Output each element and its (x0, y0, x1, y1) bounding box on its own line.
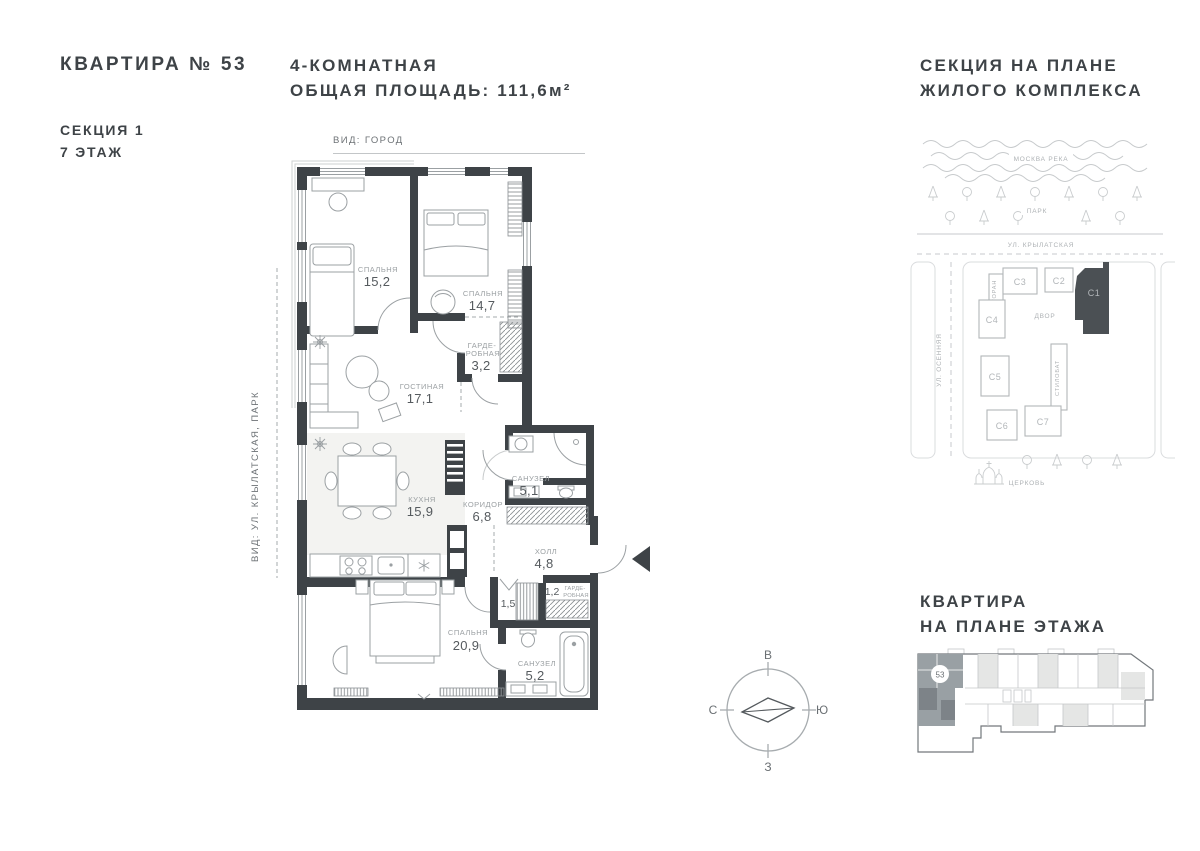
apartment-type: 4-КОМНАТНАЯ (290, 54, 572, 79)
room-label-bedroom3: СПАЛЬНЯ (448, 628, 488, 637)
building-c5-label: С5 (989, 372, 1002, 382)
building-c6-label: С6 (996, 421, 1009, 431)
room-area-hall: 4,8 (535, 556, 554, 571)
building-c3-label: С3 (1014, 277, 1027, 287)
room-label-kitchen: КУХНЯ (408, 495, 436, 504)
building-c1-highlighted (1075, 262, 1109, 334)
view-top-label: ВИД: ГОРОД (333, 135, 404, 146)
room-area-corridor: 6,8 (473, 509, 492, 524)
room-area-bath1: 5,1 (520, 483, 539, 498)
bedroom3-furniture (333, 580, 454, 699)
room-area-closet: 1,5 (501, 598, 516, 610)
floor-plate-balconies (948, 649, 1114, 654)
church-label: ЦЕРКОВЬ (1009, 480, 1045, 487)
compass-icon: В С Ю З (708, 650, 828, 774)
entrance-arrow-icon (632, 546, 650, 572)
church-icon (974, 461, 1004, 484)
room-label-bedroom2: СПАЛЬНЯ (463, 289, 503, 298)
room-area-kitchen: 15,9 (407, 504, 434, 519)
room-area-bath2: 5,2 (526, 668, 545, 683)
page-title: КВАРТИРА № 53 (60, 54, 247, 76)
bottom-trees-icon (1023, 454, 1123, 469)
section-label: СЕКЦИЯ 1 (60, 120, 144, 142)
room-label-bath1: САНУЗЕЛ (512, 474, 550, 483)
street-top-label: УЛ. КРЫЛАТСКАЯ (1008, 242, 1074, 249)
unit-number-badge: 53 (936, 671, 945, 680)
apartment-floor-plan: СПАЛЬНЯ 15,2 СПАЛЬНЯ 14,7 ГАРДЕ- РОБНАЯ … (250, 150, 680, 730)
room-label-bath2: САНУЗЕЛ (518, 659, 556, 668)
floor-label: 7 ЭТАЖ (60, 142, 144, 164)
room-label-hall: ХОЛЛ (535, 547, 557, 556)
river-label: МОСКВА РЕКА (1014, 156, 1069, 163)
building-c1-label: С1 (1088, 288, 1101, 298)
courtyard-label: ДВОР (1034, 313, 1055, 320)
site-plan-title-line1: СЕКЦИЯ НА ПЛАНЕ (920, 54, 1143, 79)
compass-east-label: В (764, 650, 772, 662)
room-area-living: 17,1 (407, 391, 434, 406)
street-left-label: УЛ. ОСЕННЯЯ (936, 333, 943, 386)
compass-north-label: С (709, 703, 718, 717)
living-furniture (310, 344, 401, 428)
floor-plan-sheet: КВАРТИРА № 53 СЕКЦИЯ 1 7 ЭТАЖ 4-КОМНАТНА… (0, 0, 1200, 851)
room-area-wardrobe1: 3,2 (472, 358, 491, 373)
building-c7-label: С7 (1037, 417, 1050, 427)
room-label-wardrobe2-l1: ГАРДЕ- (564, 586, 585, 592)
compass-south-label: Ю (816, 703, 828, 717)
total-area: ОБЩАЯ ПЛОЩАДЬ: 111,6м² (290, 79, 572, 104)
building-cluster: РЕСТОРАН С3 С2 С1 С4 ДВОР С5 СТИЛОБАТ С6… (979, 262, 1109, 440)
site-plan-title-line2: ЖИЛОГО КОМПЛЕКСА (920, 79, 1143, 104)
park-label: ПАРК (1027, 208, 1047, 215)
room-area-bedroom2: 14,7 (469, 298, 496, 313)
site-plan-map: МОСКВА РЕКА ПАРК УЛ. КРЫЛАТСКАЯ УЛ. ОСЕН… (905, 128, 1175, 488)
room-label-bedroom1: СПАЛЬНЯ (358, 265, 398, 274)
stylobate-label: СТИЛОБАТ (1055, 360, 1061, 396)
building-c4-label: С4 (986, 315, 999, 325)
floor-plate-map: 53 (903, 640, 1168, 755)
floor-plate-title-line1: КВАРТИРА (920, 590, 1106, 615)
bedroom1-furniture (310, 178, 364, 336)
room-area-wardrobe2: 1,2 (545, 586, 560, 598)
room-label-living: ГОСТИНАЯ (400, 382, 444, 391)
building-c2-label: С2 (1053, 276, 1066, 286)
room-area-bedroom3: 20,9 (453, 638, 480, 653)
floor-plate-title-line2: НА ПЛАНЕ ЭТАЖА (920, 615, 1106, 640)
compass-west-label: З (764, 760, 771, 774)
room-area-bedroom1: 15,2 (364, 274, 391, 289)
room-label-wardrobe2-l2: РОБНАЯ (563, 593, 589, 599)
room-label-wardrobe1-l2: РОБНАЯ (466, 349, 500, 358)
room-label-corridor: КОРИДОР (463, 500, 503, 509)
